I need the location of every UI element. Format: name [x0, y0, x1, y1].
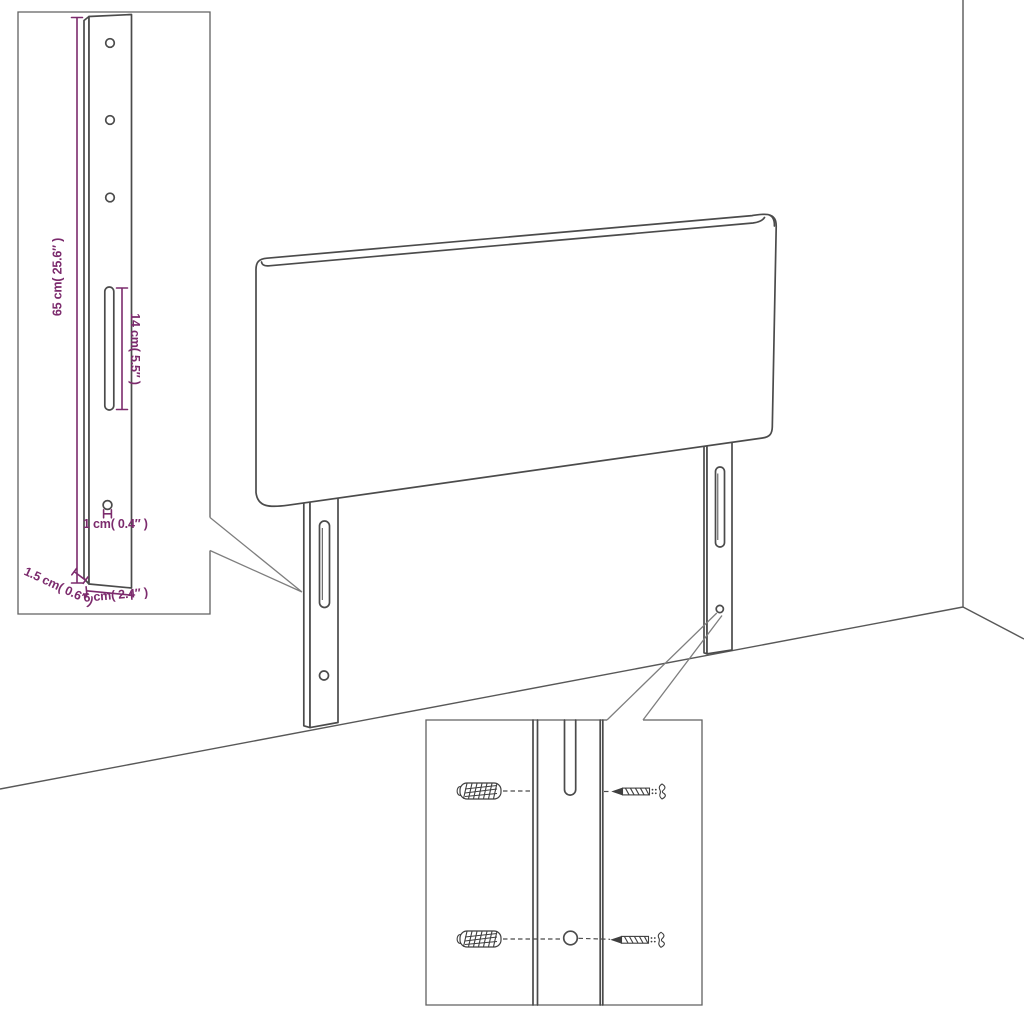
dimension-label-height: 65 cm( 25.6″ ): [51, 238, 65, 316]
left-leg-slot: [320, 521, 330, 608]
wall-plug-icon-bottom: [457, 931, 501, 947]
leg-detail-leader-lines: [210, 518, 302, 593]
diagram-stage: 65 cm( 25.6″ ) 14 cm( 5.5″ ) 1 cm( 0.4″ …: [0, 0, 1024, 1024]
dimension-label-hole-diameter: 1 cm( 0.4″ ): [83, 517, 148, 531]
detail-bottom-hole: [103, 501, 112, 510]
floor-edge-line: [963, 607, 1024, 639]
leg-detail-drawing: [84, 15, 132, 589]
left-leg-hole: [320, 671, 329, 680]
headboard-dimension-diagram: 65 cm( 25.6″ ) 14 cm( 5.5″ ) 1 cm( 0.4″ …: [0, 0, 1024, 1024]
leg-strip-hole: [564, 931, 578, 945]
headboard-panel: [256, 214, 776, 506]
dimension-label-slot-length: 14 cm( 5.5″ ): [128, 313, 142, 385]
detail-hole-top: [106, 39, 115, 48]
left-leg-side-face: [304, 501, 310, 728]
detail-slot: [105, 287, 114, 410]
panel-outline: [256, 214, 776, 506]
detail-hole-middle: [106, 116, 115, 125]
right-leg-hole: [716, 605, 723, 612]
wall-plug-icon-top: [457, 783, 501, 799]
detail-hole-lower: [106, 193, 115, 202]
mounting-detail-inset: [426, 613, 722, 1005]
right-leg-slot: [716, 467, 725, 547]
